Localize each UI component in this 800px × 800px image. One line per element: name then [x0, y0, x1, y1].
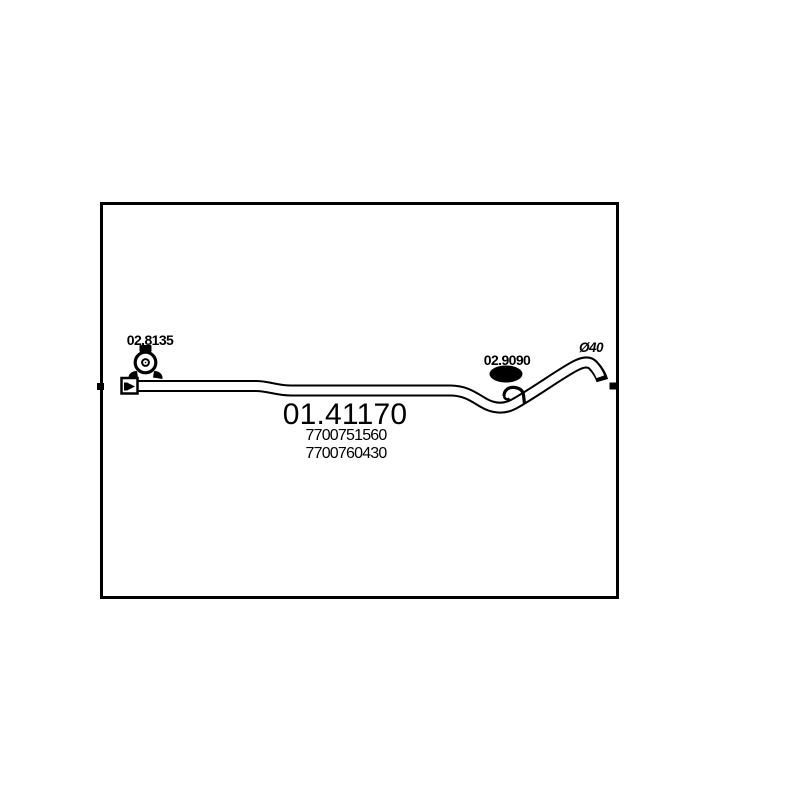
catalog-image: 02.8135 02.9090 Ø40 01.41170 7700751560 …: [0, 0, 800, 800]
main-part-number: 01.41170: [245, 401, 445, 429]
mount-part-number-label: 02.9090: [467, 353, 547, 367]
pipe-clamp-icon: [128, 345, 162, 379]
oem-number-1: 7700751560: [266, 429, 426, 443]
rubber-mount-icon: [490, 366, 523, 383]
left-edge-marker: [97, 383, 104, 390]
clamp-part-number-label: 02.8135: [110, 333, 190, 347]
oem-number-2: 7700760430: [266, 447, 426, 461]
right-edge-marker: [610, 383, 617, 390]
flange-bar: [124, 383, 127, 391]
pipe-diameter-label: Ø40: [561, 341, 621, 354]
